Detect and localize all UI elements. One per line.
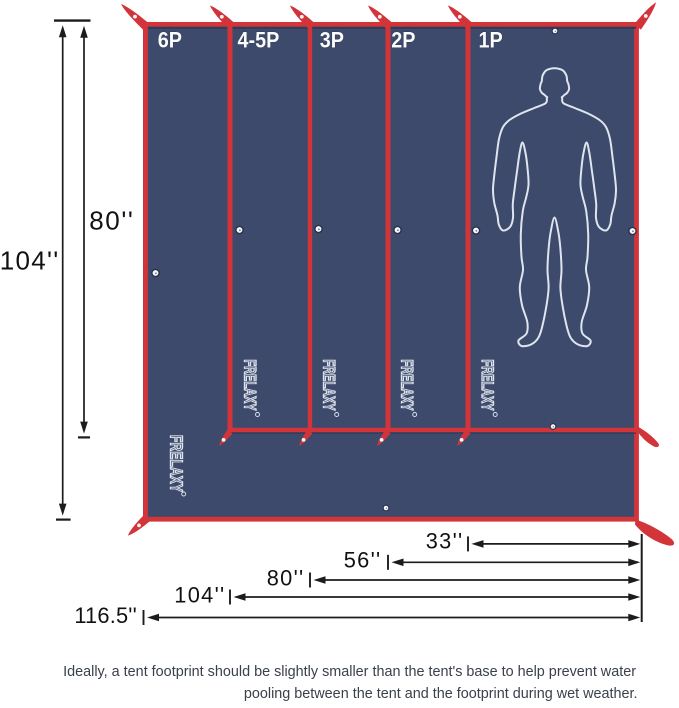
svg-text:4-5P: 4-5P: [238, 29, 280, 53]
svg-text:104'': 104'': [0, 246, 60, 276]
svg-text:3P: 3P: [320, 29, 344, 53]
svg-text:FRELAXY: FRELAXY: [478, 360, 497, 411]
svg-text:FRELAXY: FRELAXY: [320, 360, 339, 411]
svg-text:FRELAXY: FRELAXY: [166, 435, 186, 492]
svg-text:80'': 80'': [89, 206, 134, 236]
svg-text:2P: 2P: [391, 29, 415, 53]
svg-text:6P: 6P: [158, 29, 182, 53]
svg-text:FRELAXY: FRELAXY: [241, 360, 260, 411]
svg-text:104'': 104'': [174, 583, 225, 608]
svg-text:FRELAXY: FRELAXY: [398, 360, 417, 411]
svg-text:pooling between the tent and t: pooling between the tent and the footpri…: [244, 686, 638, 702]
svg-text:33'': 33'': [426, 529, 464, 554]
svg-text:80'': 80'': [267, 566, 305, 591]
svg-text:Ideally, a tent footprint shou: Ideally, a tent footprint should be slig…: [63, 664, 636, 680]
svg-text:56'': 56'': [344, 548, 382, 573]
svg-text:116.5'': 116.5'': [74, 603, 137, 628]
svg-text:1P: 1P: [479, 29, 503, 53]
